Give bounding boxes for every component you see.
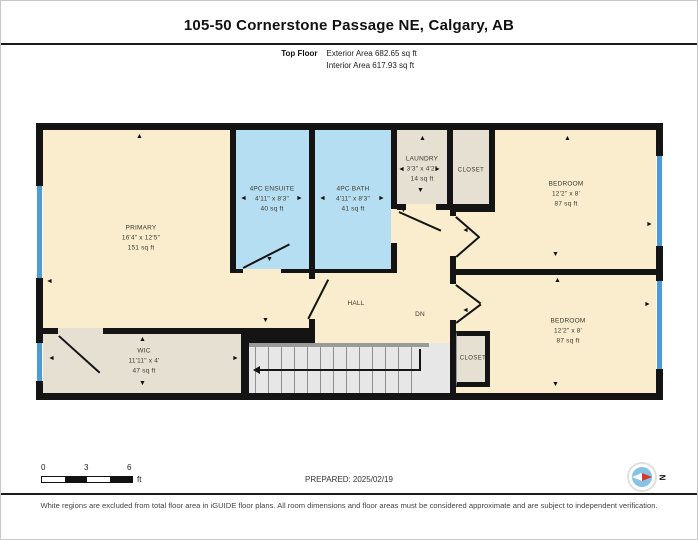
- measure-arrow-right-icon: ►: [296, 195, 303, 202]
- measure-arrow-right-icon: ►: [378, 195, 385, 202]
- stairs-rail: [249, 343, 429, 347]
- room-label-ensuite: 4PC ENSUITE 4'11" x 8'3" 40 sq ft: [250, 184, 295, 213]
- measure-arrow-right-icon: ►: [646, 221, 653, 228]
- measure-arrow-left-icon: ◄: [462, 307, 469, 314]
- room-primary-extension: [230, 273, 309, 328]
- room-label-laundry: LAUNDRY 3'3" x 4'2" 14 sq ft: [406, 154, 438, 183]
- measure-arrow-down-icon: ▼: [139, 380, 146, 387]
- room-label-bedroom-top: BEDROOM 12'2" x 8' 87 sq ft: [549, 179, 584, 208]
- door-opening-ensuite: [243, 269, 281, 273]
- room-dims: 16'4" x 12'5": [122, 233, 160, 243]
- room-label-hall: HALL: [347, 299, 364, 309]
- window-right-bedroom-top: [656, 156, 663, 246]
- header-divider: [1, 43, 697, 45]
- prepared-date: PREPARED: 2025/02/19: [1, 475, 697, 484]
- room-name: BEDROOM: [549, 179, 584, 189]
- room-name: LAUNDRY: [406, 154, 438, 164]
- door-opening-bedroom-top: [450, 216, 456, 256]
- interior-area: Interior Area 617.93 sq ft: [327, 61, 417, 70]
- compass-needle-red: [642, 473, 652, 481]
- measure-arrow-down-icon: ▼: [262, 317, 269, 324]
- measure-arrow-right-icon: ►: [232, 355, 239, 362]
- door-opening-bath: [391, 209, 397, 243]
- measure-arrow-right-icon: ►: [644, 301, 651, 308]
- compass-icon: N: [627, 462, 657, 492]
- measure-arrow-left-icon: ◄: [319, 195, 326, 202]
- measure-arrow-up-icon: ▲: [139, 336, 146, 343]
- measure-arrow-left-icon: ◄: [240, 195, 247, 202]
- window-right-bedroom-bottom: [656, 281, 663, 369]
- window-left-primary: [36, 186, 43, 278]
- room-dims: 4'11" x 8'3": [250, 194, 295, 204]
- room-name: BEDROOM: [551, 316, 586, 326]
- measure-arrow-up-icon: ▲: [136, 133, 143, 140]
- room-area: 14 sq ft: [406, 174, 438, 184]
- page-title: 105-50 Cornerstone Passage NE, Calgary, …: [1, 17, 697, 34]
- room-area: 151 sq ft: [122, 243, 160, 253]
- floor-label: Top Floor: [281, 49, 317, 73]
- room-hall-east: [397, 210, 450, 343]
- room-label-bath: 4PC BATH 4'11" x 8'3" 41 sq ft: [336, 184, 370, 213]
- room-dims: 12'2" x 8': [551, 326, 586, 336]
- compass-needle-white: [632, 473, 642, 481]
- room-label-closet-top: CLOSET: [458, 167, 484, 176]
- stairs-down-label: DN: [415, 310, 425, 320]
- room-name: HALL: [347, 299, 364, 309]
- scale-start: 0: [41, 463, 45, 472]
- area-summary: Exterior Area 682.65 sq ft Interior Area…: [327, 49, 417, 73]
- measure-arrow-down-icon: ▼: [552, 251, 559, 258]
- room-dims: 4'11" x 8'3": [336, 194, 370, 204]
- door-opening-wic: [58, 328, 103, 334]
- door-opening-laundry: [406, 204, 436, 210]
- room-area: 47 sq ft: [129, 366, 160, 376]
- floor-plan-page: 105-50 Cornerstone Passage NE, Calgary, …: [0, 0, 698, 540]
- scale-end: 6: [127, 463, 131, 472]
- measure-arrow-left-icon: ◄: [462, 227, 469, 234]
- room-name: 4PC BATH: [336, 184, 370, 194]
- stair-run-line-horizontal: [260, 369, 421, 371]
- room-name: 4PC ENSUITE: [250, 184, 295, 194]
- room-name: CLOSET: [458, 167, 484, 176]
- room-area: 87 sq ft: [549, 199, 584, 209]
- measure-arrow-down-icon: ▼: [266, 256, 273, 263]
- measure-arrow-down-icon: ▼: [417, 187, 424, 194]
- room-label-wic: WIC 11'11" x 4' 47 sq ft: [129, 346, 160, 375]
- room-area: 41 sq ft: [336, 204, 370, 214]
- measure-arrow-left-icon: ◄: [46, 278, 53, 285]
- door-opening-bedroom-bottom: [450, 284, 456, 320]
- room-label-closet-bottom: CLOSET: [460, 355, 486, 364]
- room-label-bedroom-bottom: BEDROOM 12'2" x 8' 87 sq ft: [551, 316, 586, 345]
- room-label-primary: PRIMARY 16'4" x 12'5" 151 sq ft: [122, 223, 160, 252]
- stair-run-line-vertical: [419, 349, 421, 371]
- measure-arrow-left-icon: ◄: [48, 355, 55, 362]
- measure-arrow-up-icon: ▲: [564, 135, 571, 142]
- stair-down-arrow-icon: [253, 366, 260, 374]
- room-name: PRIMARY: [122, 223, 160, 233]
- floor-summary: Top Floor Exterior Area 682.65 sq ft Int…: [1, 49, 697, 73]
- measure-arrow-down-icon: ▼: [400, 207, 407, 214]
- room-area: 87 sq ft: [551, 336, 586, 346]
- room-name: CLOSET: [460, 355, 486, 364]
- window-left-wic: [36, 343, 43, 381]
- measure-arrow-down-icon: ▼: [552, 381, 559, 388]
- room-dims: 3'3" x 4'2": [406, 164, 438, 174]
- room-dims: 12'2" x 8': [549, 189, 584, 199]
- room-dims: 11'11" x 4': [129, 356, 160, 366]
- measure-arrow-up-icon: ▲: [419, 135, 426, 142]
- exterior-area: Exterior Area 682.65 sq ft: [327, 49, 417, 58]
- floor-plan: ▲ ◄ ▼ ◄ ► ▼ ◄ ► ▼ ◄ ► ▼ ▲ ▲ ▼ ► ◄ ▲ ▼ ► …: [36, 123, 663, 400]
- room-area: 40 sq ft: [250, 204, 295, 214]
- compass-north-label: N: [658, 475, 667, 481]
- room-name: WIC: [129, 346, 160, 356]
- room-name: DN: [415, 310, 425, 320]
- measure-arrow-left-icon: ◄: [398, 166, 405, 173]
- disclaimer-text: White regions are excluded from total fl…: [1, 501, 697, 510]
- measure-arrow-up-icon: ▲: [554, 277, 561, 284]
- footer-divider: [1, 493, 697, 495]
- scale-mid: 3: [84, 463, 88, 472]
